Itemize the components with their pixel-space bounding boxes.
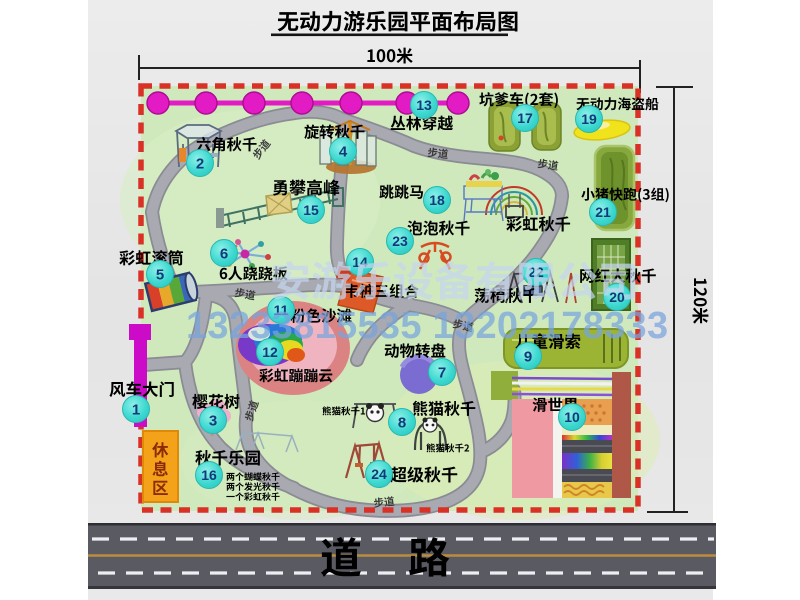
svg-text:9: 9	[524, 348, 532, 365]
svg-text:10: 10	[564, 409, 580, 425]
svg-text:21: 21	[595, 204, 611, 220]
svg-text:15: 15	[303, 202, 319, 218]
svg-text:18: 18	[429, 192, 445, 208]
svg-text:4: 4	[339, 143, 348, 160]
svg-text:2: 2	[196, 155, 204, 172]
svg-text:17: 17	[517, 110, 533, 126]
svg-text:19: 19	[581, 111, 597, 127]
svg-text:24: 24	[371, 466, 387, 482]
svg-text:3: 3	[209, 412, 217, 429]
svg-text:13: 13	[416, 97, 432, 113]
svg-text:16: 16	[201, 467, 217, 483]
svg-text:23: 23	[392, 233, 408, 249]
svg-text:1: 1	[132, 401, 140, 418]
svg-text:5: 5	[156, 266, 164, 283]
svg-text:8: 8	[398, 414, 406, 431]
svg-text:7: 7	[438, 364, 446, 381]
svg-text:6: 6	[220, 245, 228, 262]
svg-text:13233815535 13202178333: 13233815535 13202178333	[186, 305, 668, 347]
